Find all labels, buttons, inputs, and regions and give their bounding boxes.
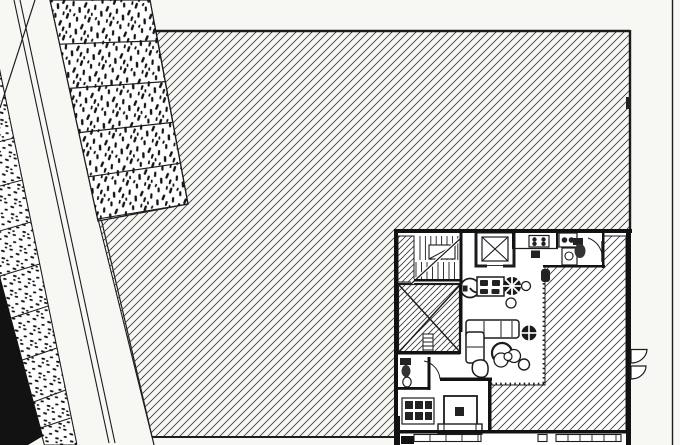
wall-pier	[401, 436, 414, 444]
cabinet-grid	[402, 398, 434, 424]
stove-icon	[529, 236, 549, 248]
bed-center-mark	[455, 407, 464, 416]
place-setting	[492, 280, 500, 286]
toilet-tank-icon	[400, 358, 411, 365]
void-room	[398, 284, 460, 353]
window-band	[556, 435, 621, 442]
fan-stool-icon	[522, 326, 537, 341]
plant-ring	[519, 359, 530, 370]
stair-wall-poche	[398, 236, 414, 282]
bedroom	[438, 396, 482, 434]
floor-plan-canvas: L	[0, 0, 680, 445]
stool-icon	[541, 269, 550, 282]
ladder-icon	[423, 334, 433, 352]
floor-plan-drawing: L	[0, 0, 680, 445]
place-setting	[480, 280, 488, 286]
toilet-icon	[402, 365, 411, 377]
pebble-seat	[472, 360, 488, 377]
toilet-tank-icon	[573, 238, 583, 245]
building: L	[394, 229, 647, 445]
plant-ring	[504, 353, 512, 361]
wall-pier	[394, 416, 400, 445]
window-band	[414, 435, 481, 442]
wall-left	[394, 229, 398, 445]
wall-bottom	[394, 430, 631, 434]
toilet-icon	[575, 244, 586, 258]
sink-icon	[403, 377, 411, 387]
wall-top	[396, 229, 632, 233]
window-band	[538, 435, 547, 442]
kitchen-appliance-block	[531, 251, 540, 259]
wheel-chair-icon	[503, 277, 521, 295]
wall-right	[626, 229, 631, 445]
border-tick	[626, 97, 631, 109]
